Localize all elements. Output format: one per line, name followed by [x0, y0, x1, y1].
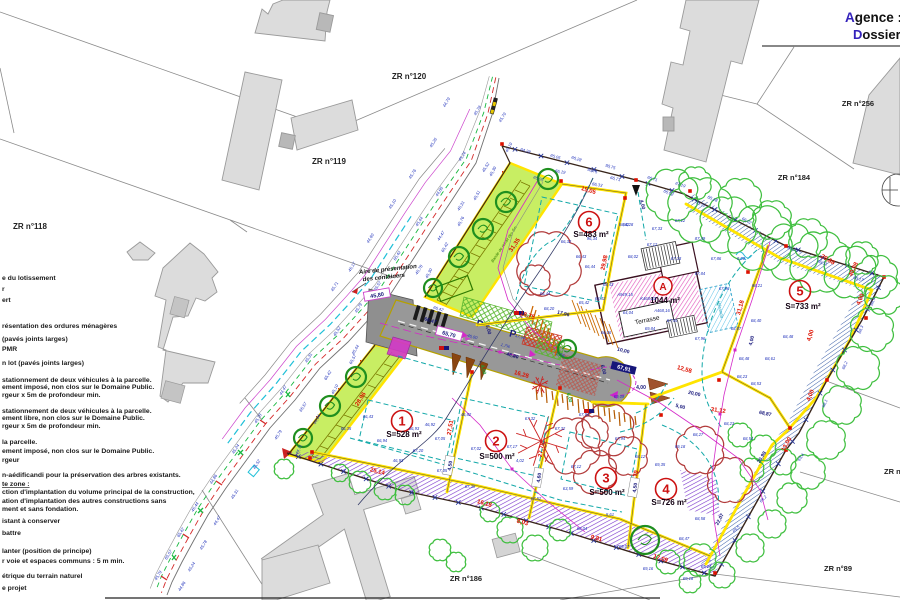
svg-text:46,93: 46,93: [393, 458, 404, 463]
svg-text:68,53: 68,53: [751, 381, 762, 386]
svg-text:96,34: 96,34: [587, 236, 598, 241]
svg-text:67,17: 67,17: [507, 444, 518, 449]
svg-text:la parcelle.: la parcelle.: [2, 439, 37, 446]
svg-text:67,02: 67,02: [471, 446, 482, 451]
svg-text:A949,15: A949,15: [616, 292, 633, 297]
svg-text:69,07: 69,07: [619, 544, 630, 549]
svg-text:67,94: 67,94: [667, 318, 678, 323]
svg-text:S=528 m²: S=528 m²: [386, 430, 422, 439]
svg-text:68,23: 68,23: [724, 421, 735, 426]
svg-text:A: A: [659, 282, 666, 293]
svg-text:S=500 m²: S=500 m²: [479, 452, 515, 461]
svg-text:ZR n°119: ZR n°119: [312, 157, 346, 166]
svg-text:68,27: 68,27: [693, 432, 704, 437]
svg-text:67,94: 67,94: [615, 436, 626, 441]
svg-text:stationnement de deux véhicule: stationnement de deux véhicules à la par…: [2, 408, 152, 415]
svg-text:ment et sans fondation.: ment et sans fondation.: [2, 506, 78, 513]
svg-text:69,35: 69,35: [655, 462, 666, 467]
svg-text:A468,16: A468,16: [653, 308, 670, 313]
svg-text:69,09: 69,09: [614, 394, 625, 399]
svg-text:e du lotissement: e du lotissement: [2, 275, 56, 282]
svg-text:68,47: 68,47: [679, 536, 690, 541]
svg-text:68,61: 68,61: [765, 356, 775, 361]
svg-text:rgeur: rgeur: [2, 457, 20, 464]
svg-text:battre: battre: [2, 530, 21, 537]
svg-text:69,14: 69,14: [701, 564, 712, 569]
svg-text:ement libre, non clos sur le D: ement libre, non clos sur le Domaine Pub…: [2, 415, 145, 422]
svg-text:68,43: 68,43: [595, 296, 606, 301]
svg-text:67,12: 67,12: [675, 218, 686, 223]
svg-text:3: 3: [602, 471, 609, 486]
svg-text:ZR n°184: ZR n°184: [778, 173, 811, 182]
svg-text:lanter (position de principe): lanter (position de principe): [2, 548, 92, 555]
svg-text:67,96: 67,96: [719, 286, 730, 291]
svg-text:r: r: [2, 286, 5, 293]
svg-text:63,59: 63,59: [563, 486, 574, 491]
svg-text:1: 1: [398, 414, 405, 429]
svg-text:stationnement de deux véhicule: stationnement de deux véhicules à la par…: [2, 377, 152, 384]
svg-text:68,23: 68,23: [737, 374, 748, 379]
svg-text:68,12: 68,12: [635, 454, 646, 459]
svg-text:67,86: 67,86: [711, 256, 722, 261]
svg-text:0,00: 0,00: [737, 256, 746, 261]
svg-text:66,94: 66,94: [377, 438, 388, 443]
svg-text:Agence :: Agence :: [845, 10, 900, 25]
svg-text:5: 5: [796, 284, 803, 299]
svg-text:66,32: 66,32: [561, 239, 572, 244]
svg-text:67,20: 67,20: [413, 448, 424, 453]
svg-text:(pavés joints larges): (pavés joints larges): [2, 336, 68, 343]
svg-text:ZR n°186: ZR n°186: [450, 574, 482, 583]
svg-text:n-aédificandi pour la préserva: n-aédificandi pour la préservation des a…: [2, 472, 181, 479]
svg-text:2: 2: [492, 434, 499, 449]
svg-text:ement imposé, non clos sur le: ement imposé, non clos sur le Domaine Pu…: [2, 448, 154, 455]
svg-text:69,16: 69,16: [643, 566, 654, 571]
svg-text:68,40: 68,40: [751, 318, 762, 323]
svg-text:68,28: 68,28: [623, 222, 634, 227]
svg-text:ZR n°256: ZR n°256: [842, 99, 874, 108]
svg-text:66,43: 66,43: [576, 254, 587, 259]
svg-text:66,44: 66,44: [540, 291, 551, 296]
svg-text:67,33: 67,33: [652, 226, 663, 231]
svg-text:ert: ert: [2, 297, 11, 304]
svg-text:66,44: 66,44: [585, 264, 596, 269]
svg-text:r voie et espaces communs : 5: r voie et espaces communs : 5 m min.: [2, 558, 125, 565]
svg-text:67,05: 67,05: [435, 436, 446, 441]
svg-text:68,48: 68,48: [783, 334, 794, 339]
svg-text:68,07: 68,07: [731, 326, 742, 331]
svg-text:66,43: 66,43: [363, 414, 374, 419]
svg-text:68,02: 68,02: [628, 254, 639, 259]
svg-text:68,54: 68,54: [743, 436, 754, 441]
svg-text:68,20: 68,20: [544, 306, 555, 311]
svg-text:69,84: 69,84: [645, 326, 656, 331]
svg-text:ction d'implantation du volume: ction d'implantation du volume principal…: [2, 489, 195, 496]
svg-text:67,94: 67,94: [579, 412, 590, 417]
svg-text:67,52: 67,52: [531, 496, 542, 501]
svg-text:4,02: 4,02: [516, 458, 525, 463]
svg-text:66,35: 66,35: [341, 426, 352, 431]
svg-text:68,43: 68,43: [603, 282, 614, 287]
svg-text:S=733 m²: S=733 m²: [785, 302, 821, 311]
svg-text:5,61: 5,61: [606, 512, 614, 517]
svg-text:te zone :: te zone :: [2, 481, 30, 488]
svg-text:S=500 m²: S=500 m²: [589, 488, 625, 497]
svg-text:6: 6: [585, 215, 592, 230]
svg-text:87,49: 87,49: [695, 236, 706, 241]
svg-text:68,58: 68,58: [695, 516, 706, 521]
svg-text:67,96: 67,96: [695, 336, 706, 341]
svg-text:ZR n°120: ZR n°120: [392, 72, 427, 81]
svg-text:rgeur x 5m de profondeur min.: rgeur x 5m de profondeur min.: [2, 423, 101, 430]
svg-text:e projet: e projet: [2, 585, 27, 592]
svg-text:67,84: 67,84: [695, 271, 706, 276]
svg-text:4: 4: [662, 482, 670, 497]
svg-text:67,05: 67,05: [437, 468, 448, 473]
svg-text:istant à conserver: istant à conserver: [2, 518, 61, 525]
svg-text:68,04: 68,04: [577, 526, 588, 531]
svg-text:ZR n°89: ZR n°89: [824, 564, 852, 573]
svg-text:66,93: 66,93: [409, 426, 420, 431]
svg-text:65,42: 65,42: [579, 300, 590, 305]
svg-text:69,18: 69,18: [675, 444, 686, 449]
svg-text:68,21: 68,21: [752, 283, 762, 288]
svg-text:67,12: 67,12: [647, 242, 658, 247]
svg-text:étrique du terrain naturel: étrique du terrain naturel: [2, 573, 83, 580]
svg-text:résentation des ordures ménagè: résentation des ordures ménagères: [2, 323, 117, 330]
svg-text:ZR n°18: ZR n°18: [884, 467, 900, 476]
svg-text:n lot (pavés joints larges): n lot (pavés joints larges): [2, 360, 84, 367]
svg-text:46,82: 46,82: [461, 412, 472, 417]
svg-text:67,32: 67,32: [555, 426, 566, 431]
svg-text:64,04: 64,04: [623, 310, 634, 315]
svg-text:46,92: 46,92: [425, 422, 436, 427]
svg-text:Dossier: Dossier: [853, 27, 900, 42]
svg-text:66,06: 66,06: [601, 330, 612, 335]
svg-text:67,33: 67,33: [671, 256, 682, 261]
svg-text:K468,23: K468,23: [640, 296, 656, 301]
svg-text:4,00: 4,00: [636, 385, 646, 391]
svg-text:ement imposé, non clos sur le: ement imposé, non clos sur le Domaine Pu…: [2, 384, 154, 391]
svg-text:ation d'implantation des autre: ation d'implantation des autres construc…: [2, 498, 167, 505]
svg-text:69,18: 69,18: [683, 576, 694, 581]
svg-text:S=726 m²: S=726 m²: [651, 498, 687, 507]
svg-text:67,12: 67,12: [571, 464, 582, 469]
svg-text:rgeur x 5m de profondeur min.: rgeur x 5m de profondeur min.: [2, 392, 101, 399]
svg-text:PMR: PMR: [2, 346, 17, 353]
svg-text:67,39: 67,39: [465, 484, 476, 489]
svg-text:68,48: 68,48: [739, 356, 750, 361]
svg-text:ZR n°118: ZR n°118: [13, 222, 47, 231]
svg-text:67,32: 67,32: [525, 416, 536, 421]
